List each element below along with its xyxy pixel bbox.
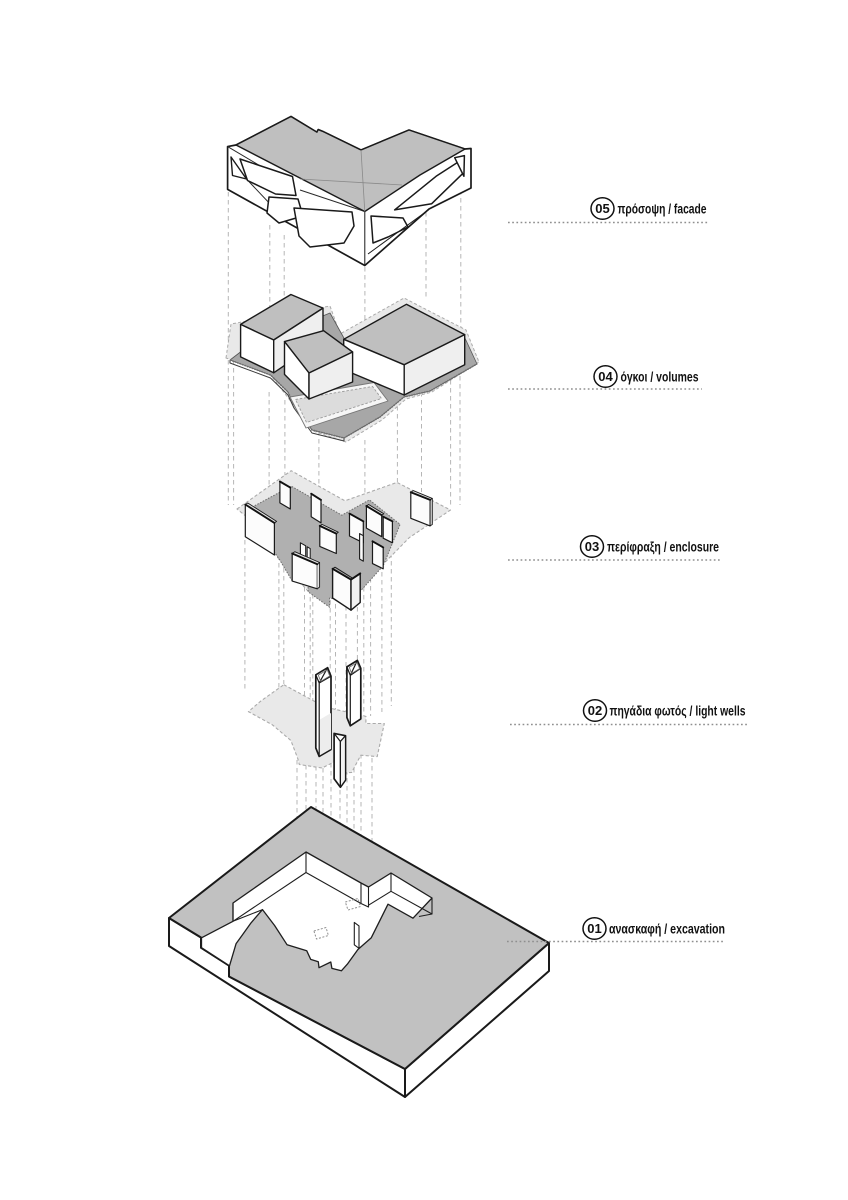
svg-text:όγκοι / volumes: όγκοι / volumes bbox=[621, 369, 699, 384]
svg-text:πρόσοψη / facade: πρόσοψη / facade bbox=[618, 201, 707, 216]
svg-text:04: 04 bbox=[598, 369, 613, 384]
svg-text:ανασκαφή / excavation: ανασκαφή / excavation bbox=[609, 921, 725, 936]
svg-text:03: 03 bbox=[585, 539, 599, 554]
svg-text:02: 02 bbox=[588, 703, 602, 718]
svg-text:01: 01 bbox=[587, 921, 601, 936]
svg-text:πηγάδια φωτός / light wells: πηγάδια φωτός / light wells bbox=[610, 703, 746, 718]
svg-text:περίφραξη / enclosure: περίφραξη / enclosure bbox=[607, 539, 719, 554]
svg-text:05: 05 bbox=[595, 201, 609, 216]
